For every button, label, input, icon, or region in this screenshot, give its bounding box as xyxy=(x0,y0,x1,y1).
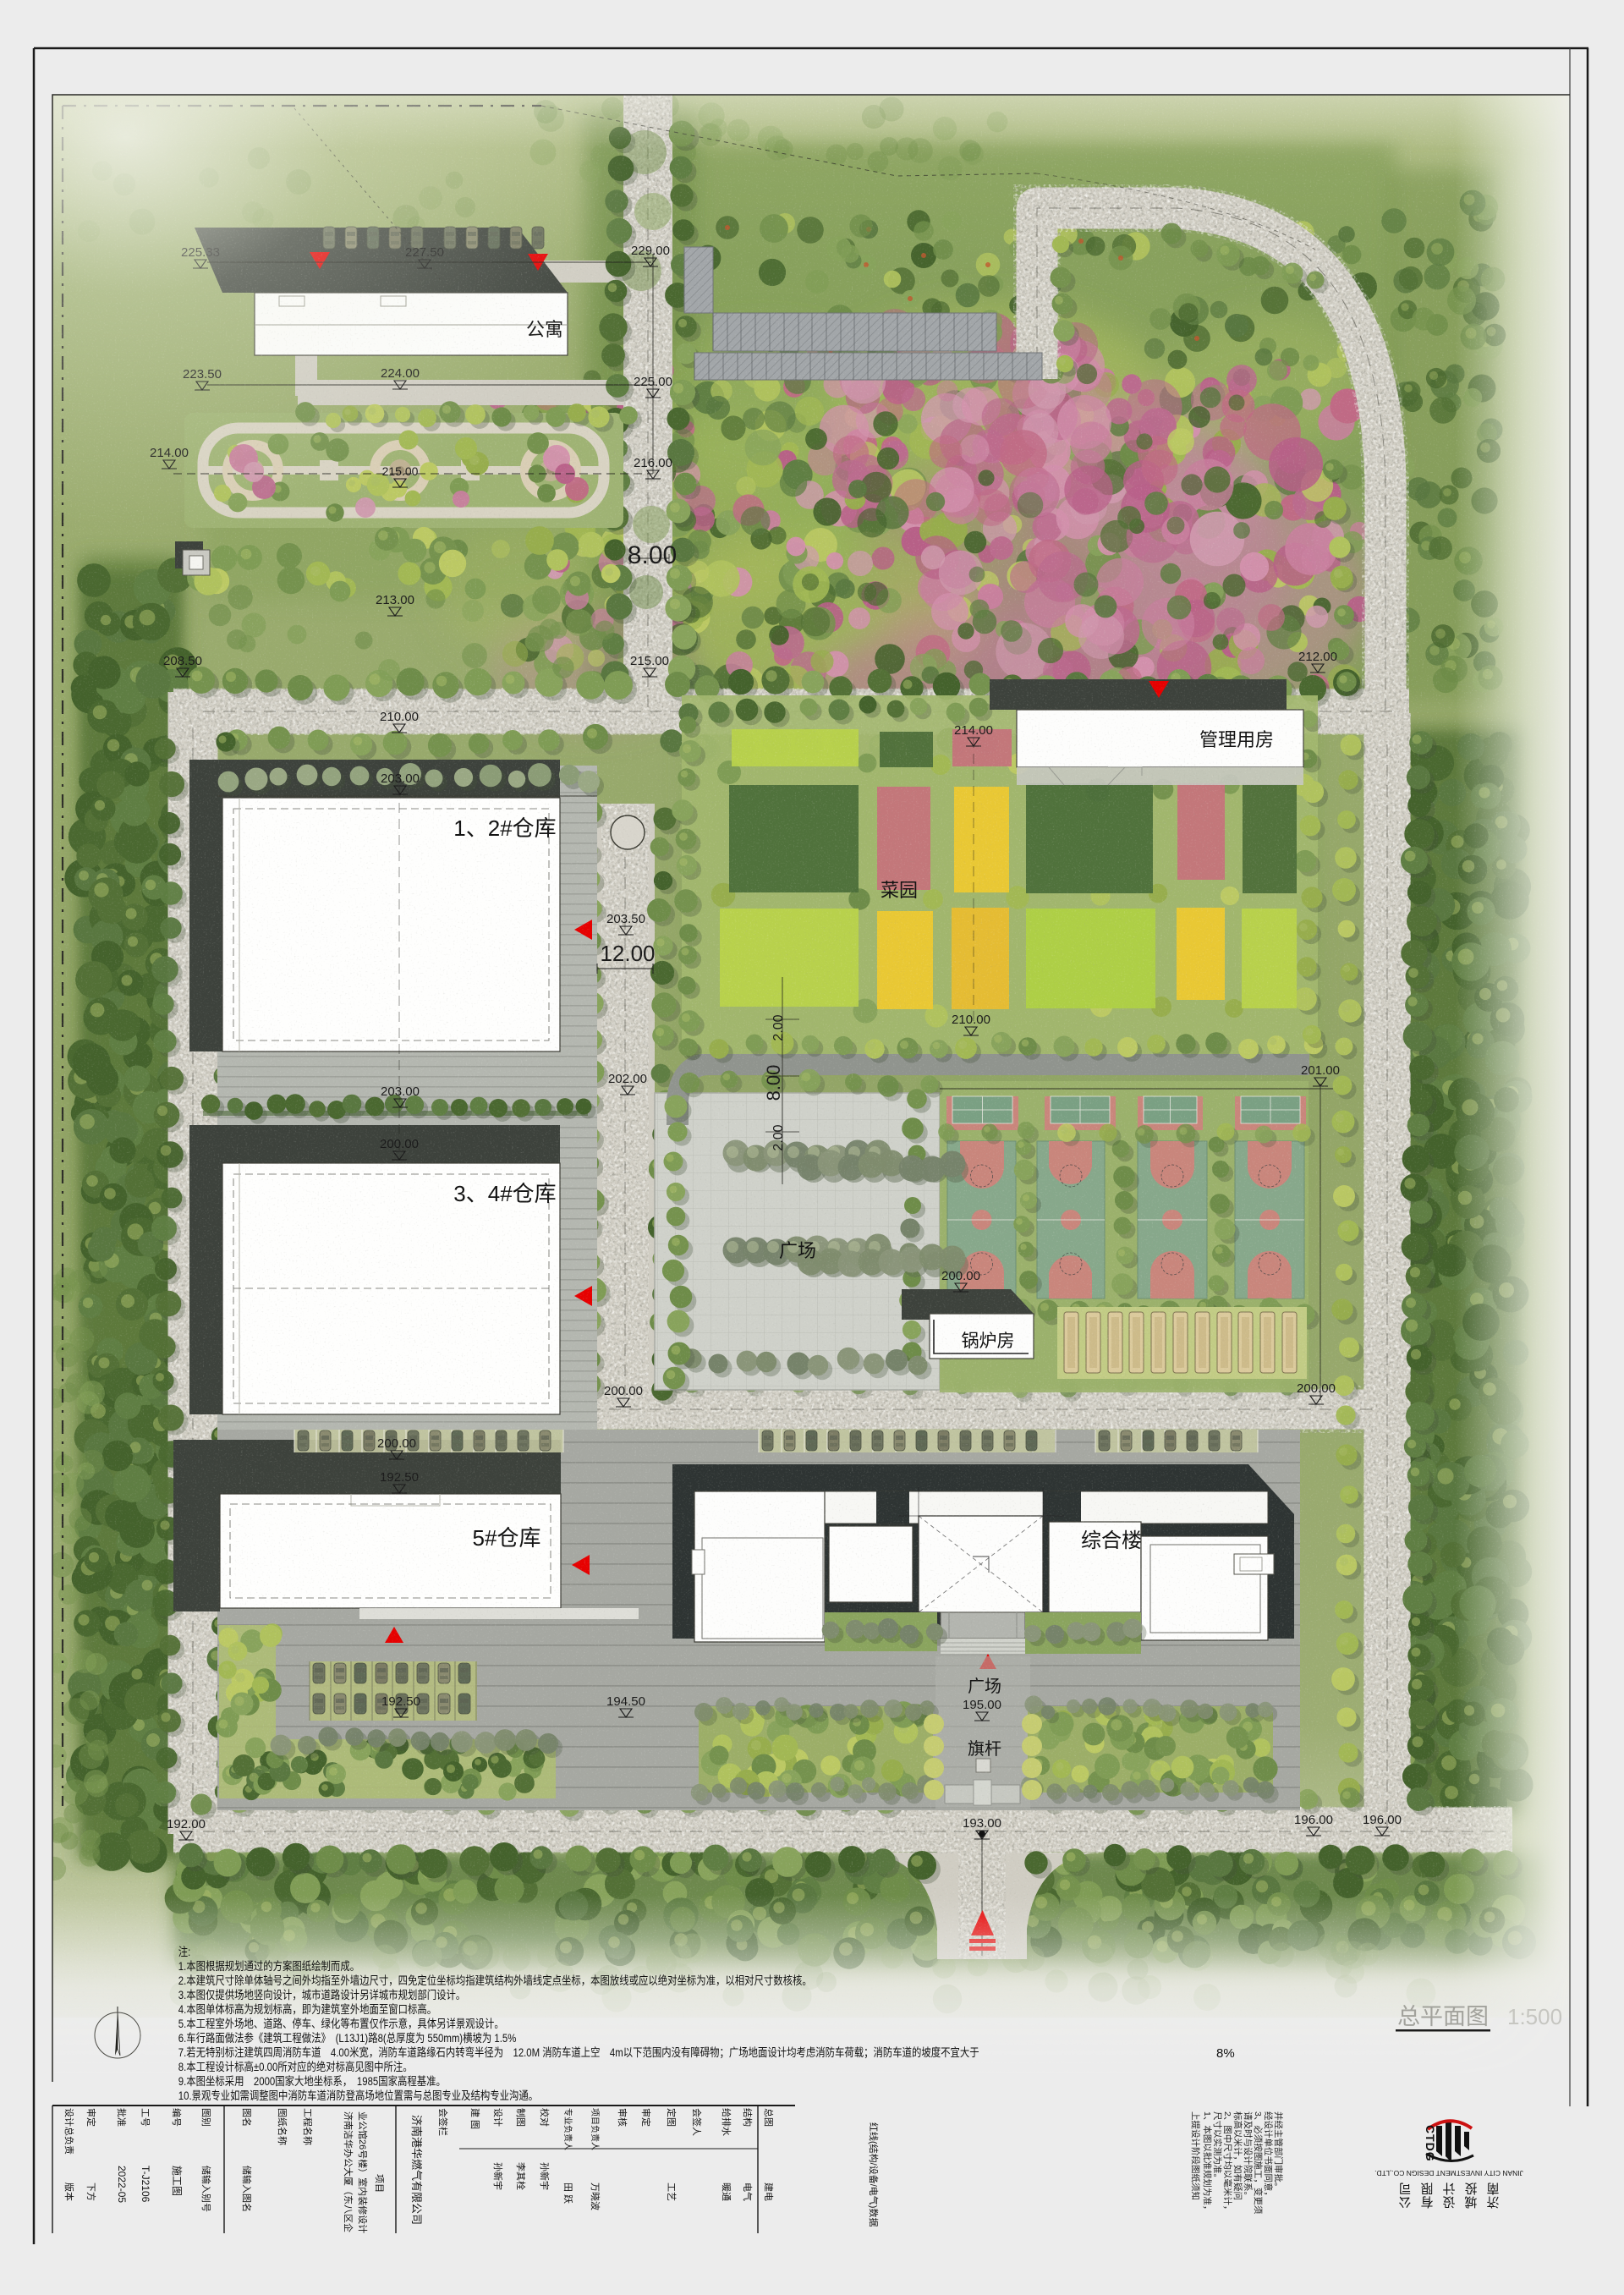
svg-text:济南港华燃气有限公司: 济南港华燃气有限公司 xyxy=(410,2115,423,2225)
svg-text:济: 济 xyxy=(1486,2194,1499,2209)
svg-text:公: 公 xyxy=(1398,2194,1411,2209)
svg-text:批准: 批准 xyxy=(116,2108,128,2127)
svg-text:下方: 下方 xyxy=(85,2182,97,2201)
svg-text:建 图: 建 图 xyxy=(469,2108,481,2129)
svg-text:标高以米计，如有疑问: 标高以米计，如有疑问 xyxy=(1232,2111,1243,2200)
svg-text:计: 计 xyxy=(1442,2181,1455,2195)
svg-text:审定: 审定 xyxy=(85,2108,97,2127)
svg-text:注:: 注: xyxy=(178,1945,191,1958)
svg-text:审定: 审定 xyxy=(640,2108,652,2127)
svg-text:工程名称: 工程名称 xyxy=(302,2108,314,2145)
svg-text:编号: 编号 xyxy=(171,2108,183,2127)
svg-text:会签栏: 会签栏 xyxy=(437,2108,449,2136)
svg-text:专业负责人: 专业负责人 xyxy=(562,2108,573,2150)
svg-text:总平面图: 总平面图 xyxy=(1397,2004,1489,2029)
svg-text:暖通: 暖通 xyxy=(721,2182,732,2201)
svg-text:孙新宇: 孙新宇 xyxy=(539,2162,551,2190)
svg-text:司: 司 xyxy=(1398,2181,1411,2195)
svg-text:3.本图仅提供场地竖向设计，城市道路设计另详城市规划部门设计: 3.本图仅提供场地竖向设计，城市道路设计另详城市规划部门设计。 xyxy=(178,1988,465,2001)
svg-text:T-J2106: T-J2106 xyxy=(140,2166,151,2203)
svg-text:校对: 校对 xyxy=(539,2108,551,2127)
svg-text:建电: 建电 xyxy=(763,2182,775,2201)
svg-text:10.景观专业如需调整图中消防车道消防登高场地位置需与总图专: 10.景观专业如需调整图中消防车道消防登高场地位置需与总图专业及结构专业沟通。 xyxy=(178,2089,538,2102)
svg-text:尺寸以实测为准。: 尺寸以实测为准。 xyxy=(1212,2111,1223,2182)
svg-text:总图: 总图 xyxy=(763,2108,775,2127)
svg-text:JINAN CITY INVESTMENT DESIGN C: JINAN CITY INVESTMENT DESIGN CO.,LTD. xyxy=(1374,2169,1523,2177)
svg-text:2、图中尺寸均以毫米计，: 2、图中尺寸均以毫米计， xyxy=(1222,2111,1233,2214)
svg-text:定图: 定图 xyxy=(666,2108,678,2127)
svg-text:1:500: 1:500 xyxy=(1507,2004,1562,2029)
svg-text:结构: 结构 xyxy=(742,2108,754,2127)
svg-text:1.本图根据规划通过的方案图纸绘制而成。: 1.本图根据规划通过的方案图纸绘制而成。 xyxy=(178,1959,359,1973)
svg-text:制图: 制图 xyxy=(515,2108,526,2127)
svg-text:南: 南 xyxy=(1486,2181,1499,2195)
svg-text:6.车行路面做法参《建筑工程做法》 (L13J1)路8(总厚: 6.车行路面做法参《建筑工程做法》 (L13J1)路8(总厚度为 550mm)横… xyxy=(178,2031,517,2045)
svg-text:图名: 图名 xyxy=(241,2108,253,2127)
svg-text:上提设计阶段图纸须知: 上提设计阶段图纸须知 xyxy=(1190,2111,1201,2200)
svg-text:电气: 电气 xyxy=(742,2182,754,2201)
svg-text:项目负责人: 项目负责人 xyxy=(590,2108,601,2150)
svg-text:万晓波: 万晓波 xyxy=(590,2182,601,2210)
svg-text:投: 投 xyxy=(1464,2181,1477,2195)
svg-text:经设计单位书面同意，: 经设计单位书面同意， xyxy=(1263,2111,1274,2200)
svg-text:版本: 版本 xyxy=(63,2182,75,2201)
svg-text:储输入别号: 储输入别号 xyxy=(200,2166,212,2212)
svg-text:设计总负责: 设计总负责 xyxy=(63,2108,75,2155)
svg-text:1、本图以批准规划为准，: 1、本图以批准规划为准， xyxy=(1202,2111,1213,2214)
svg-text:4.本图单体标高为规划标高，即为建筑室外地面至窗口标高。: 4.本图单体标高为规划标高，即为建筑室外地面至窗口标高。 xyxy=(178,2002,436,2016)
svg-text:给排水: 给排水 xyxy=(721,2108,732,2136)
svg-text:设: 设 xyxy=(1442,2194,1455,2209)
svg-text:业公馆26号楼）室内装修设计: 业公馆26号楼）室内装修设计 xyxy=(357,2111,369,2233)
svg-text:田 跃: 田 跃 xyxy=(562,2182,574,2204)
svg-text:8.本工程设计标高±0.00所对应的绝对标高见图中所注。: 8.本工程设计标高±0.00所对应的绝对标高见图中所注。 xyxy=(178,2060,413,2073)
svg-text:5.本工程室外场地、道路、停车、绿化等布置仅作示意，具体另详: 5.本工程室外场地、道路、停车、绿化等布置仅作示意，具体另详景观设计。 xyxy=(178,2017,504,2030)
svg-text:3、必须按图施工，变更须: 3、必须按图施工，变更须 xyxy=(1253,2111,1264,2215)
svg-text:设计: 设计 xyxy=(492,2108,503,2127)
svg-text:储输入图名: 储输入图名 xyxy=(241,2166,253,2212)
svg-text:并经主管部门审批。: 并经主管部门审批。 xyxy=(1273,2111,1284,2192)
svg-text:孙新宇: 孙新宇 xyxy=(492,2162,504,2190)
svg-text:项目: 项目 xyxy=(374,2174,385,2193)
svg-text:CTDG: CTDG xyxy=(1424,2125,1437,2162)
svg-text:限: 限 xyxy=(1420,2181,1433,2195)
svg-text:会签人: 会签人 xyxy=(691,2108,703,2136)
svg-text:李其栓: 李其栓 xyxy=(515,2162,527,2190)
svg-text:8%: 8% xyxy=(1216,2046,1235,2061)
svg-text:城: 城 xyxy=(1464,2194,1477,2209)
svg-text:请及时与设计院联系。: 请及时与设计院联系。 xyxy=(1243,2111,1254,2200)
svg-text:济南洁华办公大厦（东八区企: 济南洁华办公大厦（东八区企 xyxy=(343,2111,354,2232)
svg-text:2022-05: 2022-05 xyxy=(116,2166,128,2203)
svg-text:施工图: 施工图 xyxy=(171,2166,183,2196)
svg-text:2.本建筑尺寸除单体轴号之间外均指至外墙边尺寸，四免定位坐标: 2.本建筑尺寸除单体轴号之间外均指至外墙边尺寸，四免定位坐标均指建筑结构外墙线定… xyxy=(178,1974,812,1987)
svg-text:工艺: 工艺 xyxy=(666,2182,677,2201)
svg-text:审核: 审核 xyxy=(617,2108,628,2127)
svg-text:9.本图坐标采用 2000国家大地坐标系， 1985国家高程: 9.本图坐标采用 2000国家大地坐标系， 1985国家高程基准。 xyxy=(178,2074,446,2088)
svg-text:工号: 工号 xyxy=(140,2108,151,2127)
svg-text:图纸名称: 图纸名称 xyxy=(277,2108,288,2145)
svg-text:图别: 图别 xyxy=(200,2108,211,2127)
svg-text:红线(结构/设备/电气)数据: 红线(结构/设备/电气)数据 xyxy=(868,2122,880,2226)
svg-text:有: 有 xyxy=(1420,2194,1433,2209)
svg-text:7.若无特别标注建筑四周消防车道 4.00米宽，消防车道路缘: 7.若无特别标注建筑四周消防车道 4.00米宽，消防车道路缘石内转弯半径为 12… xyxy=(178,2045,979,2059)
